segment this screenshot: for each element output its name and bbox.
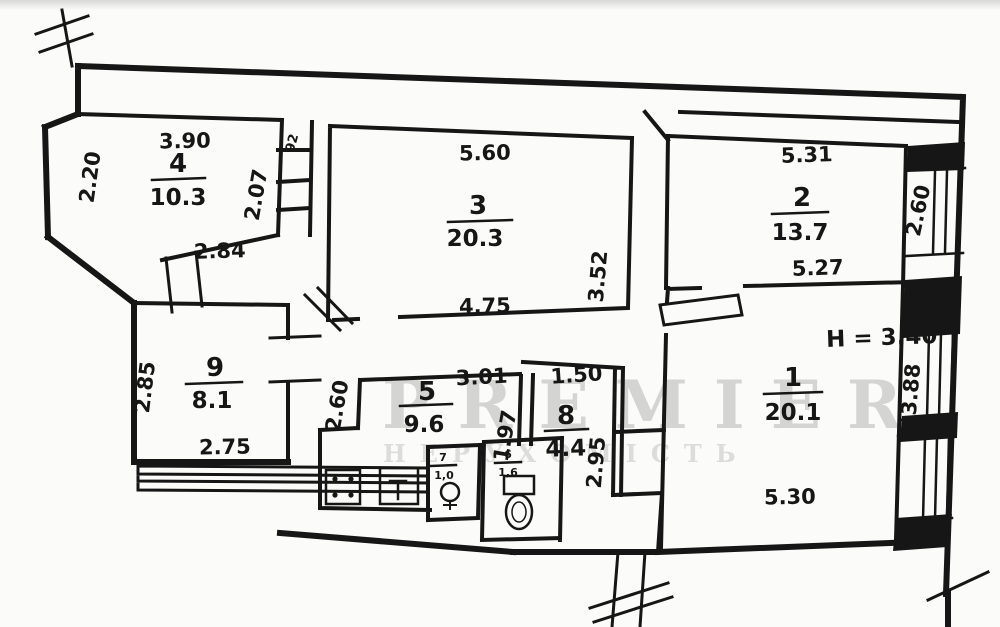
room1-area: 20.1: [765, 400, 822, 426]
room4-area: 10.3: [150, 185, 207, 211]
room3-number: 3: [469, 191, 487, 221]
room9-number: 9: [206, 353, 224, 383]
room3-area: 20.3: [447, 226, 504, 252]
room2-area: 13.7: [772, 220, 829, 246]
stove-burners-icon: [332, 476, 353, 497]
room3-dim-left: 2.07: [240, 167, 273, 222]
room9-dim-bottom: 2.75: [199, 435, 251, 460]
room6-number: 6: [504, 448, 512, 461]
room8-area: 4.4: [545, 435, 587, 462]
balcony-sill: [138, 466, 428, 492]
room1-number: 1: [784, 363, 802, 393]
room5-number: 5: [418, 377, 436, 407]
room8-dim-right: 2.95: [582, 436, 610, 490]
room4-dim-left: 2.20: [75, 150, 106, 205]
room9-dim-left: 2.85: [130, 360, 160, 414]
room4-dim-bottom: 2.84: [193, 238, 246, 264]
ceiling-height-note: H = 3.40: [826, 323, 938, 353]
room2-dim-top: 5.31: [780, 142, 833, 168]
room7-number: 7: [439, 451, 447, 464]
floorplan-page: PREMIER НЕРУХОМІСТЬ: [0, 0, 1000, 627]
room3-dim-top: 5.60: [459, 141, 511, 166]
room8-dim-top: 1.50: [550, 361, 603, 389]
room7-area: 1,0: [434, 469, 454, 482]
room3-dim-bottom: 4.75: [459, 294, 511, 319]
room5-area: 9.6: [404, 412, 445, 438]
sink-icon: [441, 483, 459, 509]
floorplan-canvas: PREMIER НЕРУХОМІСТЬ: [0, 0, 1000, 627]
room5-dim-top: 3.01: [455, 364, 508, 391]
axis-marks: [36, 10, 988, 627]
room1-dim-bottom: 5.30: [764, 485, 816, 510]
room2-number: 2: [793, 183, 811, 213]
toilet-icon: [506, 495, 532, 529]
door-marks: [166, 252, 742, 382]
room4-number: 4: [169, 149, 187, 179]
room5-dim-left: 2.60: [321, 378, 354, 433]
room3-dim-right: 3.52: [584, 250, 612, 304]
room9-area: 8.1: [192, 388, 233, 414]
room8-number: 8: [557, 401, 575, 431]
room2-dim-bottom: 5.27: [791, 255, 844, 281]
room6-area: 1,6: [498, 466, 518, 479]
room1-dim-right: 3.88: [897, 363, 925, 417]
